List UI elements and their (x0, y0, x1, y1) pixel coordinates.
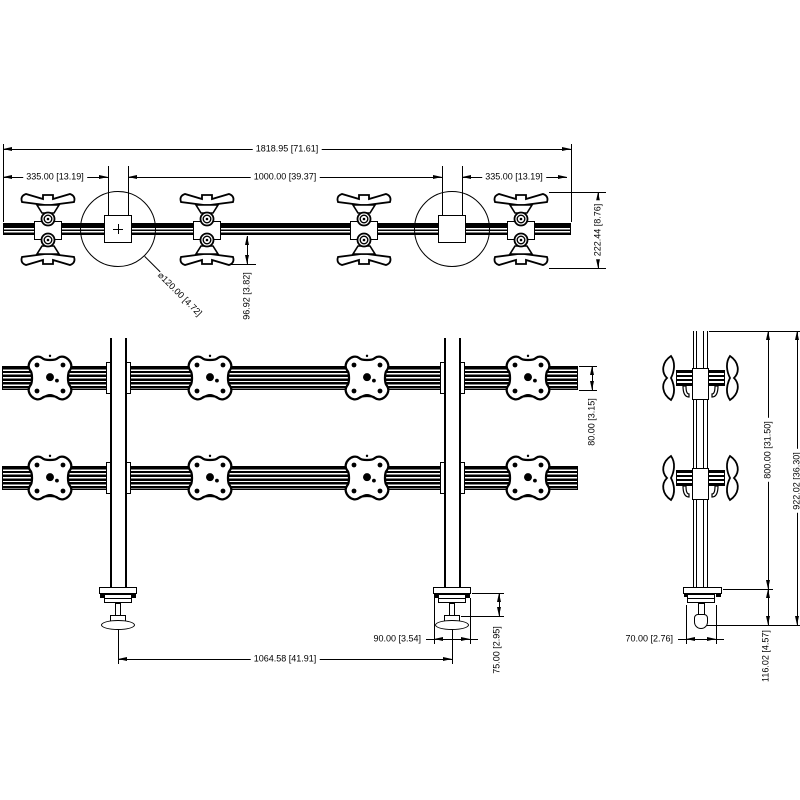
leader-line (144, 256, 160, 272)
dim-arrow (3, 147, 12, 151)
dim-label-pole-diameter: ⌀120.00 [4.72] (155, 270, 204, 319)
extension-line (549, 268, 606, 269)
dim-arrow (245, 255, 249, 264)
dim-arrow (795, 616, 799, 625)
monitor-mount-bottom (493, 234, 549, 267)
vesa-plate (341, 352, 393, 404)
clamp-bracket-line (439, 598, 465, 599)
dim-label-mount-depth: 96.92 [3.82] (242, 269, 253, 323)
center-mark (118, 224, 119, 234)
mount-block (692, 368, 709, 400)
dim-arrow (707, 637, 716, 641)
dim-label-overall-height: 922.02 [36.30] (792, 449, 800, 513)
vesa-plate-profile (658, 455, 678, 501)
clamp-tab (716, 594, 721, 597)
monitor-mount-bottom (20, 234, 76, 267)
dim-line-foot-width (678, 639, 724, 640)
monitor-mount-top (493, 192, 549, 225)
dim-arrow (461, 637, 470, 641)
dim-arrow (596, 259, 600, 268)
clamp-foot (101, 620, 135, 630)
arm-hook (682, 386, 690, 398)
mount-block (692, 468, 709, 500)
dim-arrow (433, 175, 442, 179)
monitor-mount-top (20, 192, 76, 225)
vesa-plate (184, 452, 236, 504)
dim-arrow (497, 607, 501, 616)
clamp-bracket-line (105, 598, 131, 599)
vesa-plate (24, 352, 76, 404)
extension-line (709, 331, 800, 332)
monitor-mount-bottom (179, 234, 235, 267)
technical-drawing-canvas: 1818.95 [71.61] 335.00 [13.19] 1000.00 [… (0, 0, 800, 800)
pole-cross-section-right (438, 215, 466, 243)
dim-label-post-spacing: 1064.58 [41.91] (251, 654, 320, 665)
extension-line (461, 616, 504, 617)
dim-label-total-width: 1818.95 [71.61] (253, 144, 322, 155)
vesa-plate (502, 352, 554, 404)
dim-arrow (245, 236, 249, 245)
extension-line (470, 598, 471, 644)
monitor-mount-top (179, 192, 235, 225)
dim-label-pole-height: 800.00 [31.50] (763, 418, 774, 482)
dim-label-left-offset: 335.00 [13.19] (23, 172, 87, 183)
rail-upper (2, 366, 578, 390)
dim-label-rail-height: 80.00 [3.15] (587, 395, 598, 449)
vesa-plate-profile (723, 455, 743, 501)
clamp-plate (683, 587, 722, 594)
dim-arrow (686, 637, 695, 641)
dim-arrow (596, 192, 600, 201)
dim-label-center-span: 1000.00 [39.37] (251, 172, 320, 183)
dim-arrow (434, 637, 443, 641)
clamp-foot (694, 614, 708, 629)
dim-arrow (128, 175, 137, 179)
vesa-plate-profile (723, 355, 743, 401)
vesa-plate (184, 352, 236, 404)
clamp-plate (99, 587, 137, 594)
monitor-mount-top (336, 192, 392, 225)
vesa-plate (24, 452, 76, 504)
arm-hook (711, 386, 719, 398)
dim-arrow (766, 580, 770, 589)
pole-right (444, 338, 461, 589)
extension-line (230, 264, 256, 265)
dim-arrow (766, 331, 770, 340)
dim-arrow (99, 175, 108, 179)
dim-label-clamp-width: 90.00 [3.54] (370, 634, 424, 645)
dim-arrow (462, 175, 471, 179)
dim-arrow (443, 657, 452, 661)
dim-arrow (3, 175, 12, 179)
dim-arrow (558, 175, 567, 179)
dim-label-clamp-depth: 75.00 [2.95] (492, 623, 503, 677)
dim-arrow (766, 616, 770, 625)
extension-line (579, 390, 597, 391)
extension-line (452, 630, 453, 664)
dim-arrow (590, 381, 594, 390)
rail-lower (2, 466, 578, 490)
dim-arrow (562, 147, 571, 151)
dim-arrow (118, 657, 127, 661)
arm-hook (711, 486, 719, 498)
extension-line (3, 144, 4, 222)
dim-label-assembly-depth: 222.44 [8.76] (593, 201, 604, 260)
extension-line (571, 144, 572, 222)
extension-line (579, 366, 597, 367)
dim-arrow (497, 593, 501, 602)
monitor-mount-bottom (336, 234, 392, 267)
clamp-bracket-line (688, 598, 714, 599)
pole-left (110, 338, 127, 589)
dim-label-foot-width: 70.00 [2.76] (622, 634, 676, 645)
dim-label-below-desk: 116.02 [4.57] (761, 627, 772, 685)
vesa-plate-profile (658, 355, 678, 401)
clamp-foot (435, 620, 469, 630)
vesa-plate (502, 452, 554, 504)
dim-arrow (766, 589, 770, 598)
dim-label-right-offset: 335.00 [13.19] (482, 172, 546, 183)
arm-hook (682, 486, 690, 498)
dim-arrow (795, 331, 799, 340)
vesa-plate (341, 452, 393, 504)
extension-line (707, 625, 800, 626)
dim-arrow (590, 366, 594, 375)
clamp-plate (433, 587, 471, 594)
